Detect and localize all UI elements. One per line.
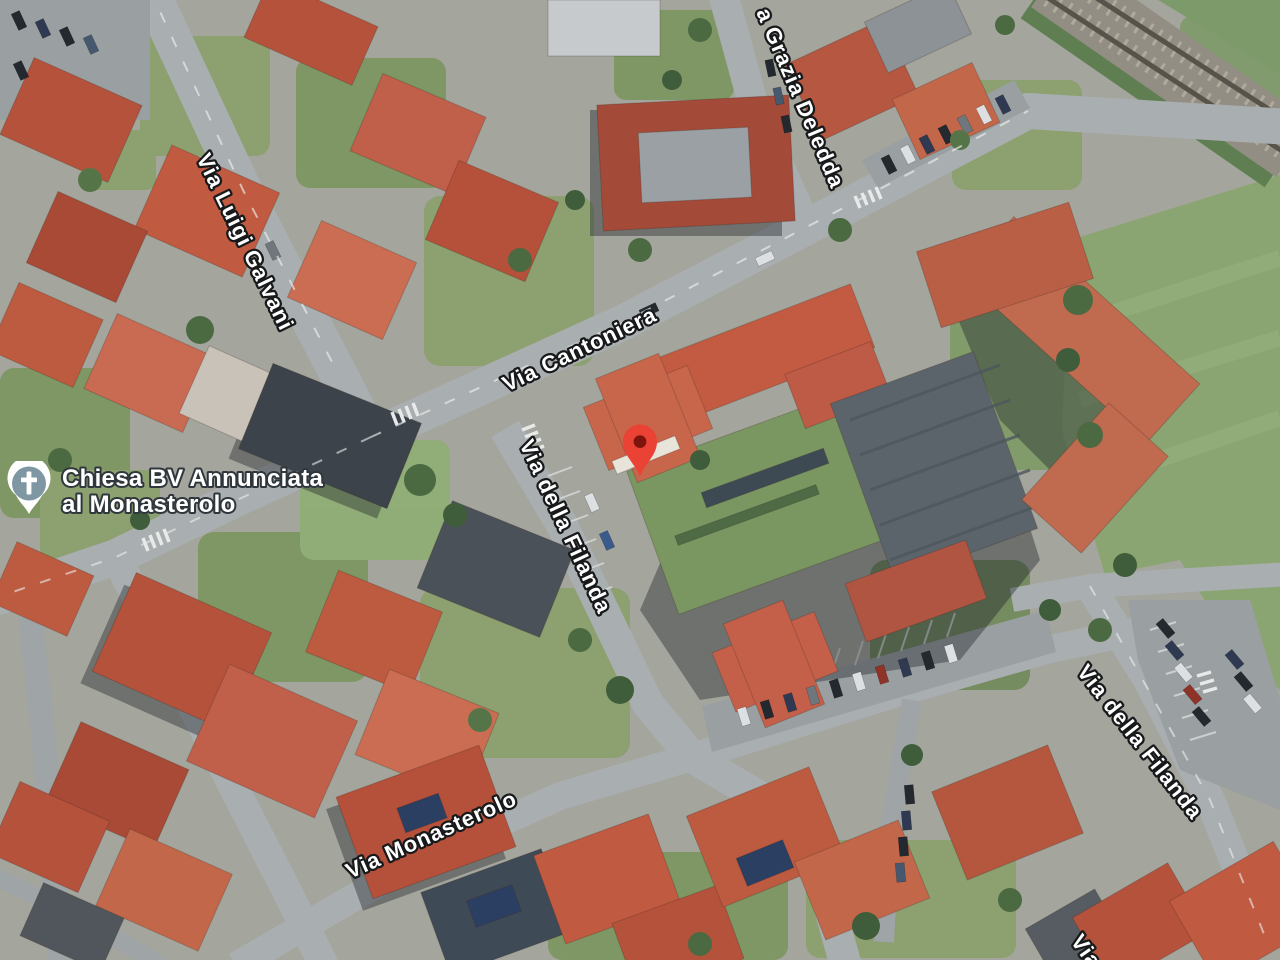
map-pin[interactable] [621, 423, 659, 479]
poi-label-line1: Chiesa BV Annunciata [62, 465, 324, 492]
poi-church-label: Chiesa BV Annunciata al Monasterolo [56, 459, 356, 521]
poi-church[interactable]: Chiesa BV Annunciata al Monasterolo [6, 459, 356, 521]
map-canvas[interactable]: Via Luigi GalvaniVia Cantonieraa Grazia … [0, 0, 1280, 960]
church-icon [6, 461, 52, 515]
poi-label-line2: al Monasterolo [62, 491, 236, 518]
